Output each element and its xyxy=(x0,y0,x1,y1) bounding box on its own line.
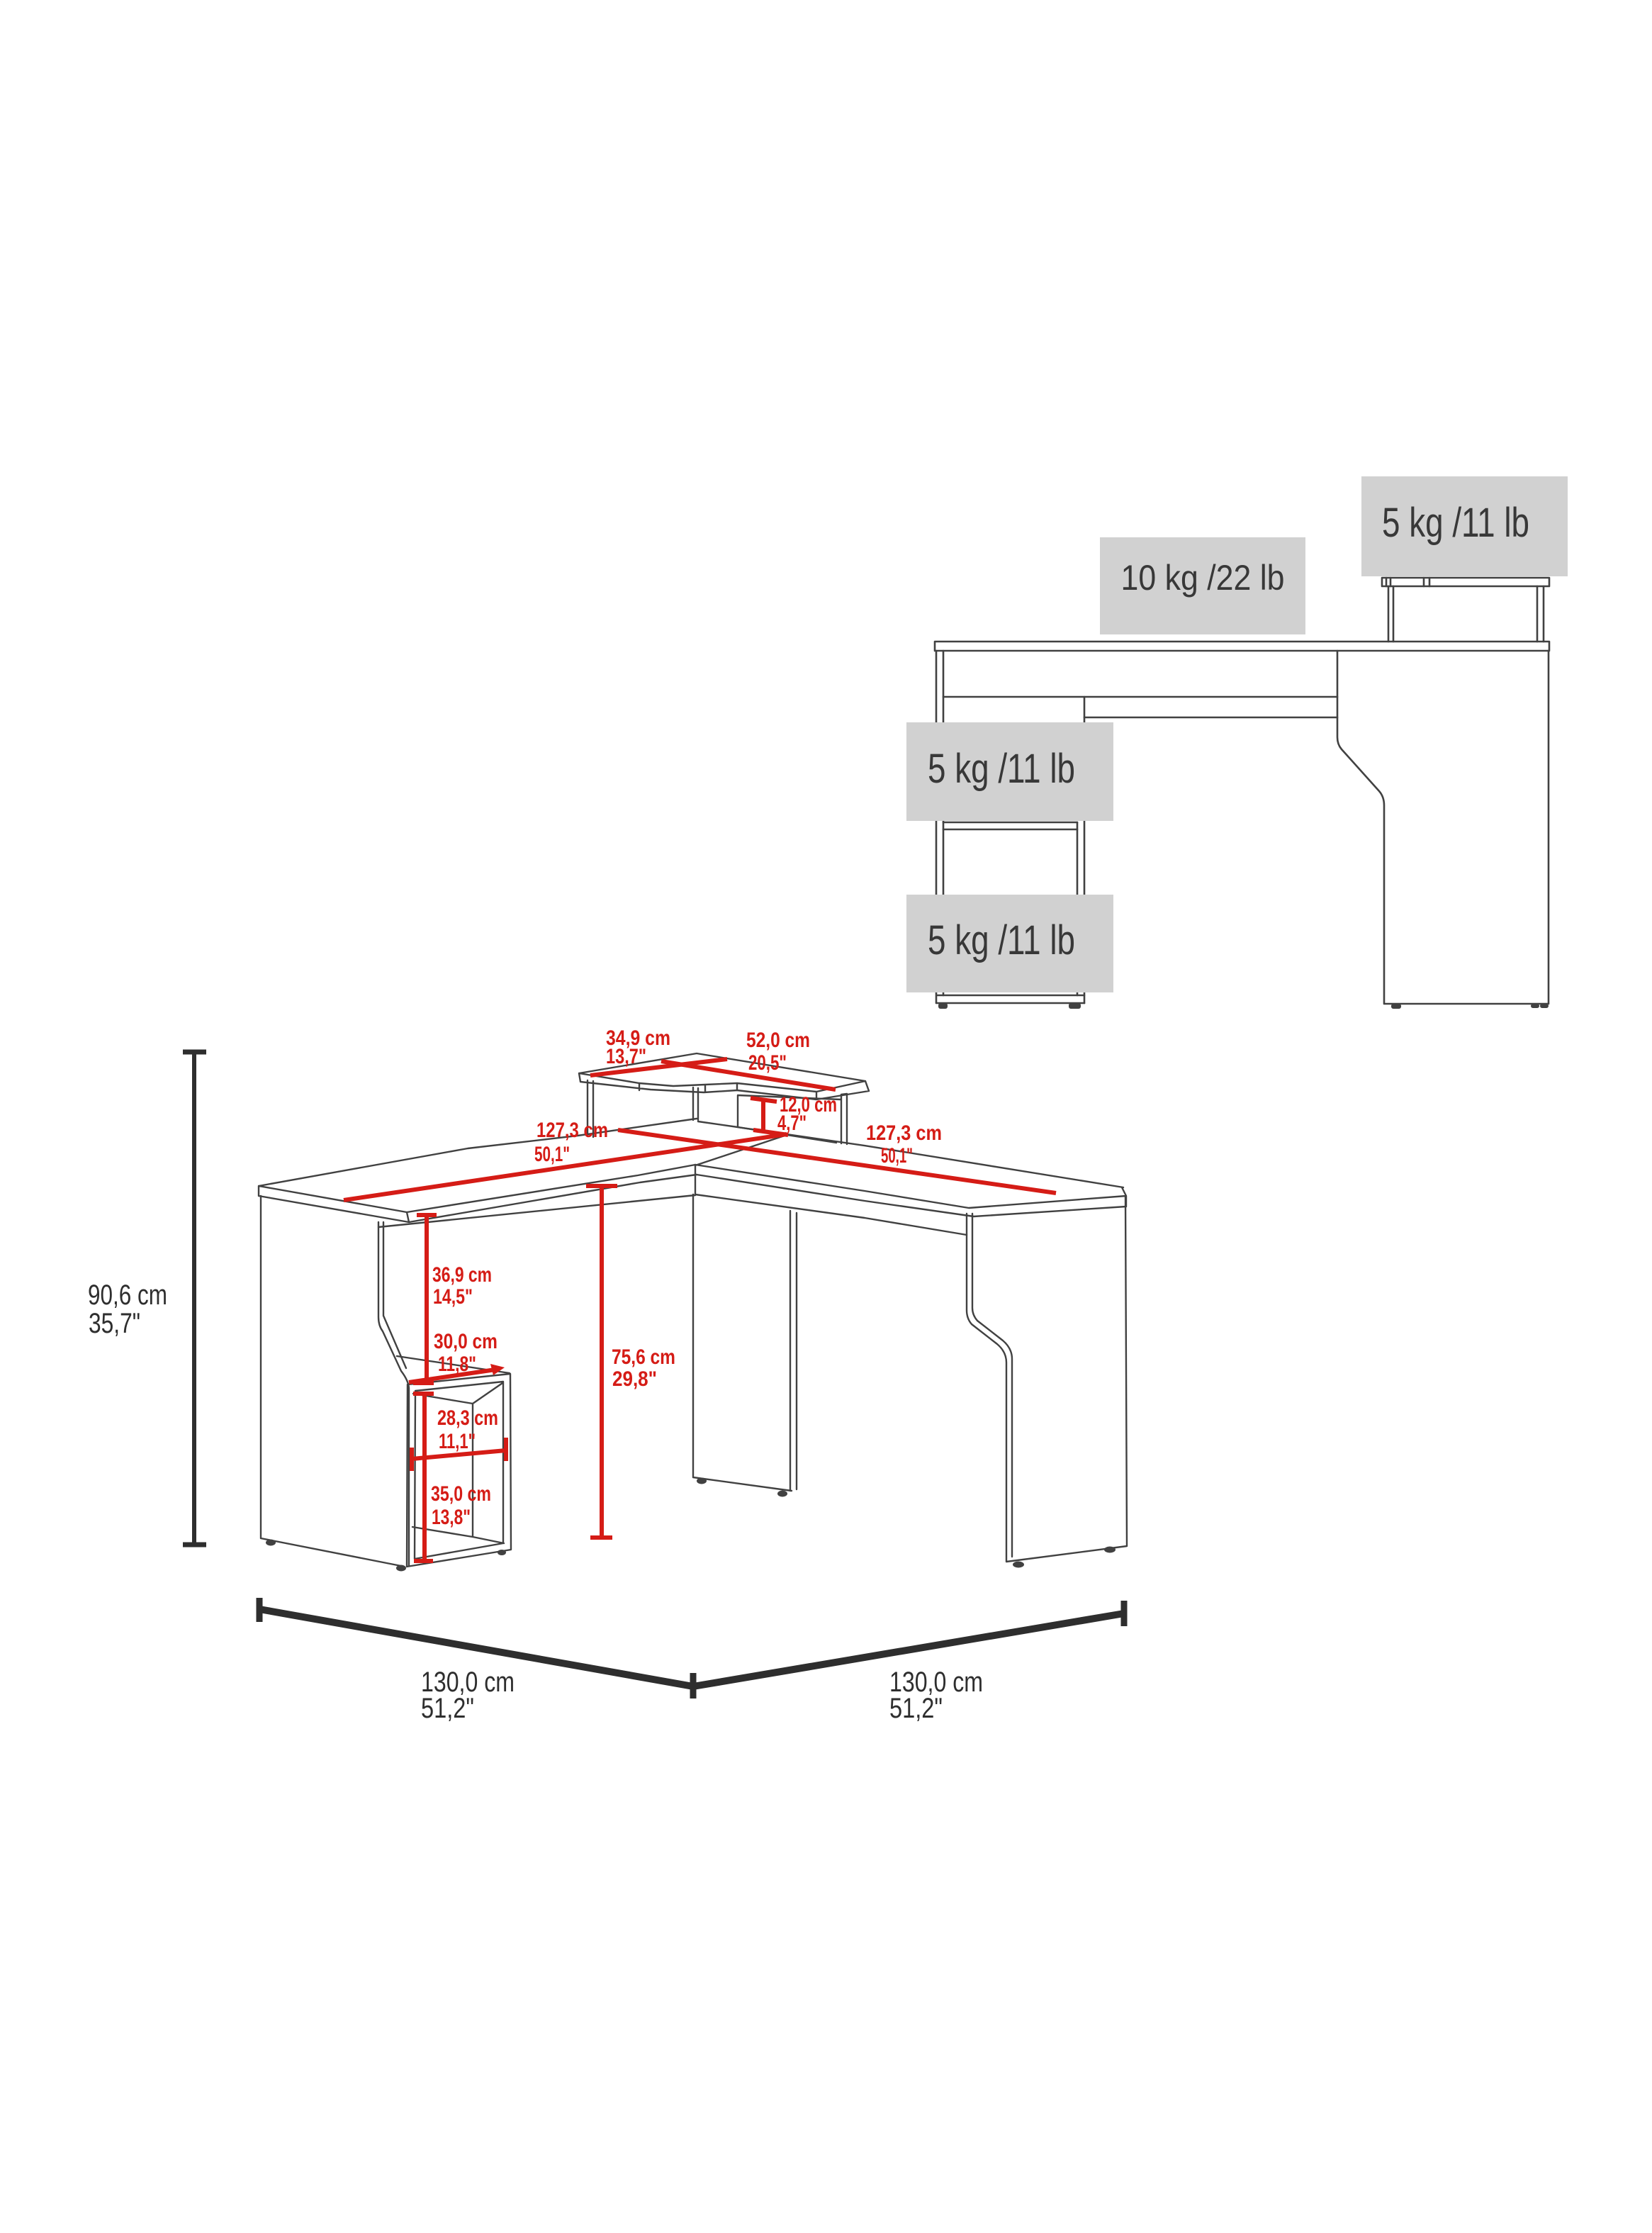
svg-text:90,6 cm: 90,6 cm xyxy=(88,1280,167,1311)
svg-text:5 kg /11 lb: 5 kg /11 lb xyxy=(928,746,1075,792)
svg-text:52,0 cm: 52,0 cm xyxy=(746,1029,810,1052)
svg-text:11,1": 11,1" xyxy=(439,1430,476,1453)
svg-text:11,8": 11,8" xyxy=(438,1353,476,1376)
svg-text:5 kg /11 lb: 5 kg /11 lb xyxy=(928,917,1075,963)
svg-text:13,8": 13,8" xyxy=(432,1506,471,1529)
svg-text:20,5": 20,5" xyxy=(748,1051,787,1075)
svg-text:127,3 cm: 127,3 cm xyxy=(536,1119,608,1142)
svg-text:14,5": 14,5" xyxy=(433,1285,473,1309)
svg-text:29,8": 29,8" xyxy=(612,1367,657,1391)
svg-text:75,6 cm: 75,6 cm xyxy=(612,1345,675,1369)
svg-text:28,3 cm: 28,3 cm xyxy=(437,1406,498,1430)
svg-text:50,1": 50,1" xyxy=(534,1143,570,1166)
svg-text:35,0 cm: 35,0 cm xyxy=(431,1482,491,1506)
svg-text:4,7": 4,7" xyxy=(777,1112,807,1135)
svg-text:36,9 cm: 36,9 cm xyxy=(432,1263,492,1287)
svg-text:5 kg /11 lb: 5 kg /11 lb xyxy=(1382,500,1529,546)
svg-text:35,7": 35,7" xyxy=(89,1308,140,1339)
svg-text:51,2": 51,2" xyxy=(421,1693,474,1724)
svg-text:127,3 cm: 127,3 cm xyxy=(866,1121,942,1145)
svg-text:10 kg /22 lb: 10 kg /22 lb xyxy=(1121,558,1285,598)
svg-text:13,7": 13,7" xyxy=(606,1045,646,1068)
svg-text:30,0 cm: 30,0 cm xyxy=(434,1330,498,1353)
svg-text:50,1": 50,1" xyxy=(881,1144,913,1168)
svg-text:51,2": 51,2" xyxy=(889,1693,943,1724)
